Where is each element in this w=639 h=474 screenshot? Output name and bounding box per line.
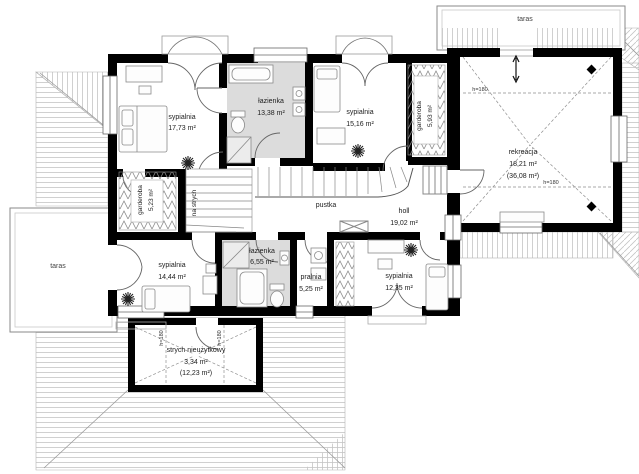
plant-icon xyxy=(351,144,365,158)
terrace-left: taras xyxy=(10,208,117,332)
label-lazienka2-name: łazienka xyxy=(249,248,275,255)
label-h180-1: h=180 xyxy=(472,87,487,93)
label-strych-area2: (12,23 m²) xyxy=(180,370,212,377)
window-bed1-left xyxy=(103,76,117,134)
label-sypialnia1-area: 17,73 m² xyxy=(168,125,196,132)
label-garderoba2-name: garderoba xyxy=(416,101,423,131)
label-garderoba2-area: 5,93 m² xyxy=(427,104,434,127)
label-sypialnia3-area: 14,44 m² xyxy=(158,274,186,281)
closet-holl xyxy=(423,166,447,194)
label-h180-2: h=180 xyxy=(543,180,558,186)
terrace-top-label: taras xyxy=(517,16,533,23)
bathtub-2 xyxy=(237,269,267,307)
floor-plan-canvas: taras taras xyxy=(0,0,639,474)
label-rekreacja-area: 18,21 m² xyxy=(509,161,537,168)
toilet-1 xyxy=(231,111,245,133)
label-sypialnia4-name: sypialnia xyxy=(385,273,412,280)
window-pralnia-bottom xyxy=(296,306,313,318)
label-sypialnia2-area: 15,16 m² xyxy=(346,121,374,128)
label-pralnia-area: 5,25 m² xyxy=(299,286,323,293)
window-junction-upper xyxy=(445,215,461,240)
label-strych-area: 3,34 m² xyxy=(184,359,208,366)
bed-3 xyxy=(142,286,190,312)
floor-plan-page: taras taras xyxy=(0,0,639,474)
plant-icon xyxy=(181,156,195,170)
label-lazienka1-name: łazienka xyxy=(258,98,284,105)
toilet-2 xyxy=(270,284,284,307)
label-holl-name: holl xyxy=(399,208,410,215)
label-garderoba1-area: 5,23 m² xyxy=(148,188,155,211)
label-rekreacja-name: rekreacja xyxy=(509,149,538,156)
dresser-bed1 xyxy=(126,66,162,82)
bathtub-1 xyxy=(229,65,273,83)
label-lazienka1-area: 13,38 m² xyxy=(257,110,285,117)
balcony-sill-bed4 xyxy=(368,316,426,324)
label-h180-4: h=180 xyxy=(217,330,223,345)
desk-bed4 xyxy=(368,240,404,253)
label-pralnia-name: pralnia xyxy=(300,274,321,281)
label-sypialnia2-name: sypialnia xyxy=(346,109,373,116)
label-holl-area: 19,02 m² xyxy=(390,220,418,227)
window-rekreacja-right xyxy=(611,116,627,162)
bed-2 xyxy=(314,66,340,112)
shower-2 xyxy=(223,242,249,268)
table-bed1 xyxy=(139,86,151,94)
shower-1 xyxy=(227,137,251,163)
window-bath1-top xyxy=(254,48,307,62)
sink-2 xyxy=(280,251,289,265)
bed-1 xyxy=(119,106,167,152)
closet-x-holl xyxy=(340,221,368,232)
label-pustka: pustka xyxy=(316,202,337,209)
label-sypialnia3-name: sypialnia xyxy=(158,262,185,269)
window-rekreacja-bottom xyxy=(500,221,542,233)
plant-icon xyxy=(121,292,135,306)
label-na-strych: na strych xyxy=(191,189,198,216)
dormer-bed1 xyxy=(162,36,228,54)
label-garderoba1-name: garderoba xyxy=(137,185,144,215)
bed-4 xyxy=(426,264,448,310)
chair-bed3 xyxy=(206,264,216,273)
bench-rekreacja xyxy=(500,212,544,222)
label-sypialnia4-area: 12,35 m² xyxy=(385,285,413,292)
label-h180-3: h=180 xyxy=(159,330,165,345)
plant-icon xyxy=(404,243,418,257)
terrace-top: taras xyxy=(437,6,625,50)
desk-bed3 xyxy=(203,276,217,294)
washer xyxy=(311,248,326,263)
dormer-bed2 xyxy=(336,36,392,54)
label-lazienka2-area: 6,55 m² xyxy=(250,259,274,266)
table-bed4 xyxy=(378,259,392,269)
label-rekreacja-area2: (36,08 m²) xyxy=(507,173,539,180)
desk-bed2 xyxy=(317,128,345,144)
label-sypialnia1-name: sypialnia xyxy=(168,114,195,121)
label-strych-name: strych nieużytkowy xyxy=(167,347,226,354)
terrace-left-label: taras xyxy=(50,263,66,270)
wardrobe-bed4 xyxy=(336,242,354,306)
